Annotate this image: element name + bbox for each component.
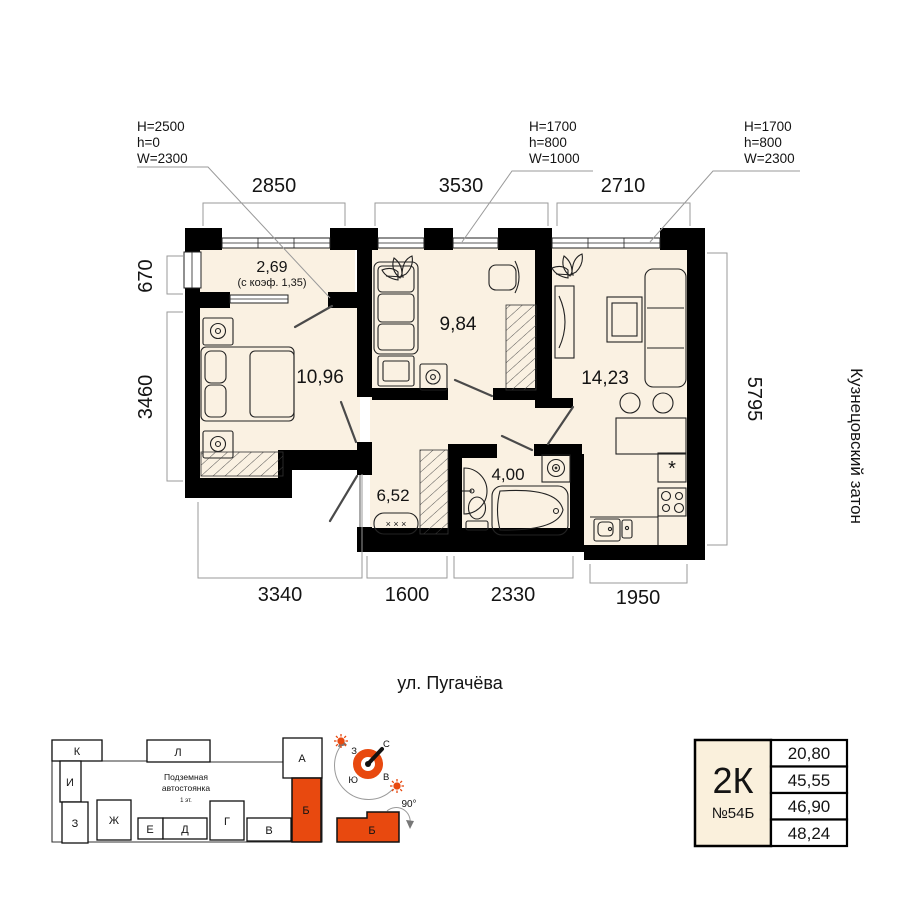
apartment-number: №54Б xyxy=(712,805,755,822)
window-spec-3: H=1700 h=800 W=2300 xyxy=(650,119,800,242)
floorplan-canvas: * × × × xyxy=(0,0,900,900)
dim-top-3: 2710 xyxy=(601,175,646,197)
dim-bottom-3: 2330 xyxy=(491,584,536,606)
bedroom-wardrobe-icon xyxy=(201,452,283,476)
dim-top-2: 3530 xyxy=(439,175,484,197)
spec-line: H=1700 xyxy=(744,119,792,134)
parking-label: автостоянка xyxy=(162,783,211,793)
rotation-label: 90° xyxy=(401,799,416,810)
compass-east: В xyxy=(383,772,389,783)
block-letter: К xyxy=(74,746,81,758)
bath-area: 4,00 xyxy=(491,465,524,484)
dim-left-2: 3460 xyxy=(135,375,157,420)
block-letter: В xyxy=(265,825,272,837)
block-letter: А xyxy=(298,753,306,765)
spec-line: h=800 xyxy=(529,135,567,150)
dim-top-1: 2850 xyxy=(252,175,297,197)
dim-bottom-1: 3340 xyxy=(258,584,303,606)
side-window-icon xyxy=(184,252,201,288)
block-letter: Ж xyxy=(109,815,119,827)
compass-south: Ю xyxy=(348,775,358,786)
rotation-arrow xyxy=(406,820,414,829)
parking-note: 1 эт. xyxy=(180,798,192,804)
hall-wardrobe-icon xyxy=(420,450,448,534)
sun-icon xyxy=(390,779,404,793)
compass-west: З xyxy=(351,746,357,757)
spec-line: h=800 xyxy=(744,135,782,150)
compass-block-letter: Б xyxy=(368,825,375,837)
bench-marks: × × × xyxy=(386,519,407,529)
district-label: Кузнецовский затон xyxy=(847,368,866,524)
block-letter-highlight: Б xyxy=(302,805,309,817)
site-plan: К Л А И Б З Ж Е Д Г В Подземная автостоя… xyxy=(52,738,322,843)
parking-label: Подземная xyxy=(164,772,208,782)
block-letter: Д xyxy=(181,824,189,836)
compass: С З Ю В 90° Б xyxy=(334,734,417,842)
block-letter: Е xyxy=(146,824,153,836)
spec-line: H=1700 xyxy=(529,119,577,134)
area-value: 48,24 xyxy=(788,824,831,843)
spec-line: W=1000 xyxy=(529,151,580,166)
balcony-glazing-icon xyxy=(230,295,288,303)
room-area: 9,84 xyxy=(440,314,477,335)
spec-line: H=2500 xyxy=(137,119,185,134)
hall-area: 6,52 xyxy=(376,486,409,505)
compass-north: С xyxy=(383,739,390,750)
area-value: 20,80 xyxy=(788,744,831,763)
dim-left-1: 670 xyxy=(135,259,157,292)
area-value: 45,55 xyxy=(788,771,831,790)
info-box: 2К №54Б 20,80 45,55 46,90 48,24 xyxy=(695,740,847,846)
balcony-note: (с коэф. 1,35) xyxy=(237,277,306,289)
balcony-area: 2,69 xyxy=(256,259,287,276)
spec-line: W=2300 xyxy=(744,151,795,166)
block-letter: И xyxy=(66,777,74,789)
dim-bottom-4: 1950 xyxy=(616,587,661,609)
spec-line: W=2300 xyxy=(137,151,188,166)
living-area: 14,23 xyxy=(581,368,629,389)
living-window-icon xyxy=(552,238,660,248)
block-letter: Г xyxy=(224,816,230,828)
street-label: ул. Пугачёва xyxy=(397,673,504,693)
bedroom-area: 10,96 xyxy=(296,367,344,388)
fridge-symbol: * xyxy=(668,458,676,480)
block-letter: З xyxy=(72,818,79,830)
room-wardrobe-icon xyxy=(506,305,536,390)
sun-icon xyxy=(334,734,348,748)
entrance-door-icon xyxy=(330,476,357,521)
spec-line: h=0 xyxy=(137,135,160,150)
dim-right-1: 5795 xyxy=(743,377,765,422)
block-letter: Л xyxy=(174,747,181,759)
dim-bottom-2: 1600 xyxy=(385,584,430,606)
area-value: 46,90 xyxy=(788,797,831,816)
apartment-type: 2К xyxy=(713,760,754,801)
